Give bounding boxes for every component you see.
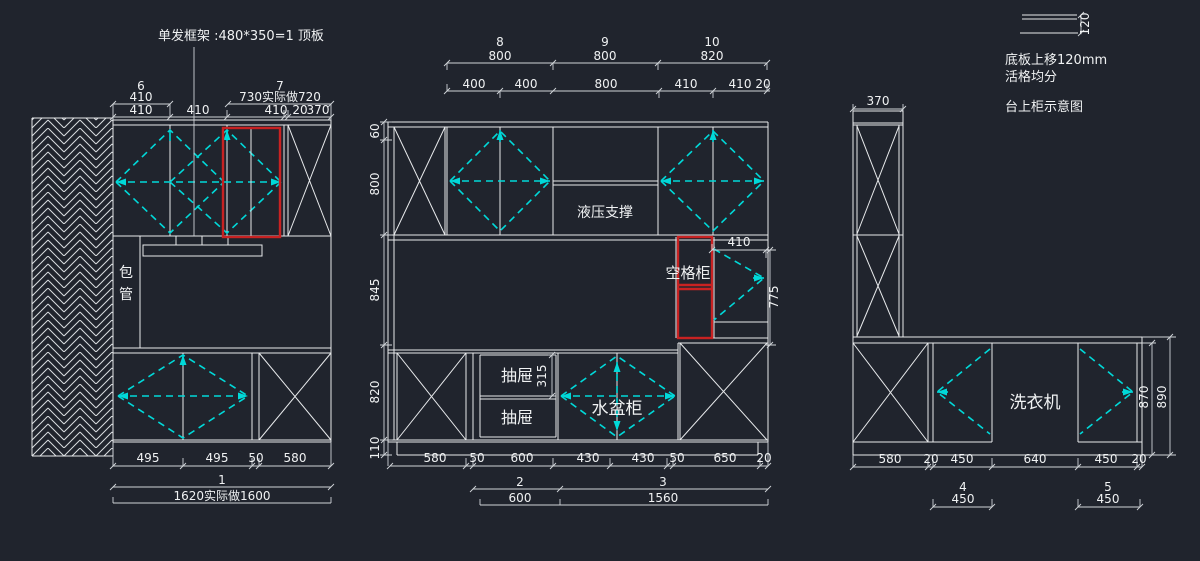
dim-text: 450 [1095, 452, 1118, 466]
left-elevation: 包 管 6 410 7 730实际做720 410 410 410 20 370… [32, 28, 334, 503]
unit8-number: 8 [496, 35, 504, 49]
note-line-3: 台上柜示意图 [1005, 99, 1083, 115]
cad-canvas[interactable]: 包 管 6 410 7 730实际做720 410 410 410 20 370… [0, 0, 1200, 561]
unit1-total-width: 1620实际做1600 [173, 488, 270, 503]
right-linework [853, 111, 1142, 455]
unit2-width: 600 [509, 491, 532, 505]
dims-left: 6 410 7 730实际做720 410 410 410 20 370 495… [110, 47, 334, 503]
wall-hatch [32, 118, 113, 456]
highlight-box-empty-cabinet[interactable] [678, 237, 712, 338]
unit9-number: 9 [601, 35, 609, 49]
empty-cabinet-label: 空格柜 [665, 264, 710, 282]
pipe-boxing-label-1: 包 [119, 265, 133, 281]
dim-text: 845 [368, 279, 382, 302]
dim-text: 20 [1131, 452, 1146, 466]
dim-text: 20 [292, 103, 307, 117]
unit5-width: 450 [1097, 492, 1120, 506]
dim-text: 315 [535, 365, 549, 388]
dim-text: 495 [206, 451, 229, 465]
dim-text: 650 [714, 451, 737, 465]
dim-text: 580 [424, 451, 447, 465]
dim-text: 410 [265, 103, 288, 117]
unit3-number: 3 [659, 475, 667, 489]
unit6-width: 410 [130, 90, 153, 104]
pipe-boxing-strip: 包 管 [119, 236, 140, 348]
dims-middle: 8 800 9 800 10 820 400 400 800 410 410 2… [368, 35, 781, 505]
dim-text: 60 [368, 123, 382, 138]
door-swing-empty-cabinet [714, 249, 764, 320]
dim-text: 370 [307, 103, 330, 117]
dim-text: 110 [368, 437, 382, 460]
frame-annotation: 单发框架 :480*350=1 顶板 [158, 28, 324, 44]
dim-text: 20 [756, 451, 771, 465]
door-swing-sink [561, 356, 675, 437]
unit8-width: 800 [489, 49, 512, 63]
dim-text: 410 [130, 103, 153, 117]
unit4-width: 450 [952, 492, 975, 506]
dim-text: 600 [511, 451, 534, 465]
light-pelmet [143, 245, 262, 256]
dim-text: 775 [767, 286, 781, 309]
dim-text: 410 [187, 103, 210, 117]
pipe-boxing-label-2: 管 [119, 287, 133, 303]
dim-text: 120 [1078, 13, 1092, 36]
dim-text: 400 [463, 77, 486, 91]
base-cabinets-left [113, 348, 331, 442]
dim-text: 20 [755, 77, 770, 91]
dim-text: 50 [469, 451, 484, 465]
dim-text: 640 [1024, 452, 1047, 466]
door-swing-symbols-right [937, 349, 1133, 434]
note-line-1: 底板上移120mm [1005, 52, 1107, 68]
dim-text: 410 [675, 77, 698, 91]
dim-text: 410 [729, 77, 752, 91]
drawer-label-1: 抽屉 [501, 366, 533, 385]
unit10-number: 10 [704, 35, 719, 49]
dim-text: 430 [577, 451, 600, 465]
dim-text: 20 [923, 452, 938, 466]
unit2-number: 2 [516, 475, 524, 489]
middle-elevation: 液压支撑 空格柜 抽屉 抽屉 水盆柜 8 800 9 800 10 820 40… [368, 35, 781, 505]
unit3-width: 1560 [648, 491, 679, 505]
dim-text: 580 [284, 451, 307, 465]
dim-text: 50 [248, 451, 263, 465]
dim-text: 450 [951, 452, 974, 466]
cad-drawing-area[interactable]: 包 管 6 410 7 730实际做720 410 410 410 20 370… [0, 0, 1200, 561]
dim-text: 400 [515, 77, 538, 91]
dim-text: 890 [1155, 386, 1169, 409]
note-line-2: 活格均分 [1005, 69, 1057, 85]
highlight-box-upper-left[interactable] [223, 128, 280, 237]
dim-text: 800 [368, 173, 382, 196]
unit10-width: 820 [701, 49, 724, 63]
notes-block: 底板上移120mm 活格均分 台上柜示意图 [1005, 52, 1107, 115]
dim-text: 370 [867, 94, 890, 108]
bottom-panel-detail: 120 [1020, 12, 1092, 36]
unit1-number: 1 [218, 473, 226, 487]
dim-text: 495 [137, 451, 160, 465]
dim-text: 870 [1137, 386, 1151, 409]
right-elevation: 洗衣机 370 870 890 580 20 450 640 450 20 4 … [850, 94, 1176, 510]
sink-cabinet-label: 水盆柜 [592, 399, 643, 419]
dim-text: 430 [632, 451, 655, 465]
dim-text: 820 [368, 381, 382, 404]
dim-text: 800 [595, 77, 618, 91]
dim-text: 410 [728, 235, 751, 249]
hydraulic-support-label: 液压支撑 [577, 205, 633, 221]
unit7-width: 730实际做720 [239, 89, 321, 104]
dim-text: 50 [669, 451, 684, 465]
door-swing-symbols-upper-left [116, 130, 281, 233]
dim-text: 580 [879, 452, 902, 466]
washing-machine-label: 洗衣机 [1010, 393, 1061, 413]
drawer-label-2: 抽屉 [501, 408, 533, 427]
unit9-width: 800 [594, 49, 617, 63]
